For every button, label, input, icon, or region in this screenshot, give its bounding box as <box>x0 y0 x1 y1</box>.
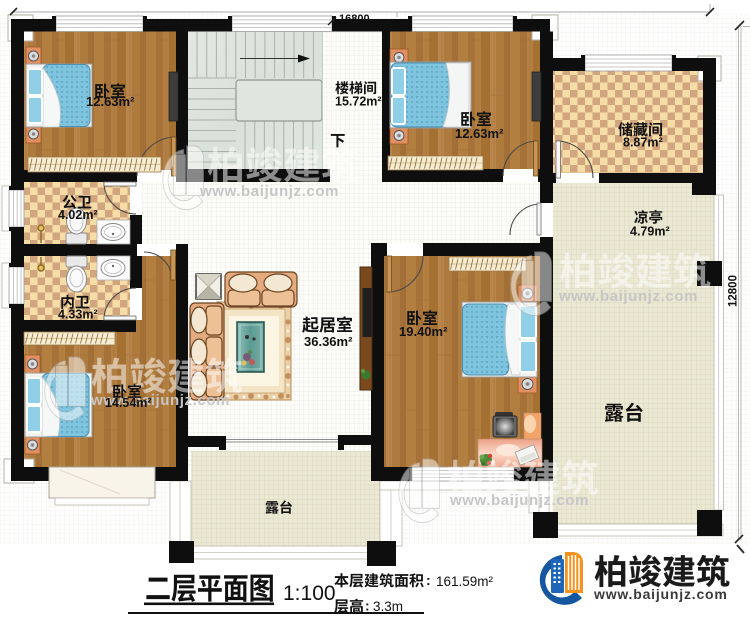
svg-text:www.baijunjz.com: www.baijunjz.com <box>449 492 589 509</box>
svg-text:1:100: 1:100 <box>283 582 336 605</box>
svg-text:3.3m: 3.3m <box>373 599 403 614</box>
svg-text:12800: 12800 <box>728 275 740 307</box>
svg-text:4.02m²: 4.02m² <box>58 208 98 222</box>
svg-text:www.baijunjz.com: www.baijunjz.com <box>593 586 728 602</box>
svg-text:www.baijunjz.com: www.baijunjz.com <box>199 183 339 200</box>
svg-text:19.40m²: 19.40m² <box>399 324 448 339</box>
svg-text:36.36m²: 36.36m² <box>304 334 353 349</box>
svg-text:12.63m²: 12.63m² <box>455 126 504 141</box>
svg-text:www.baijunjz.com: www.baijunjz.com <box>558 288 698 305</box>
svg-text:4.33m²: 4.33m² <box>58 308 98 322</box>
svg-text::: : <box>426 572 431 588</box>
svg-text:14.54m²: 14.54m² <box>105 396 152 410</box>
svg-text:12.63m²: 12.63m² <box>86 94 135 109</box>
svg-text:15.72m²: 15.72m² <box>335 95 382 109</box>
svg-text:4.79m²: 4.79m² <box>630 225 670 239</box>
svg-text:16800: 16800 <box>339 13 370 25</box>
svg-text:161.59m²: 161.59m² <box>436 574 494 589</box>
svg-text:8.87m²: 8.87m² <box>623 136 663 150</box>
svg-text::: : <box>365 598 370 614</box>
